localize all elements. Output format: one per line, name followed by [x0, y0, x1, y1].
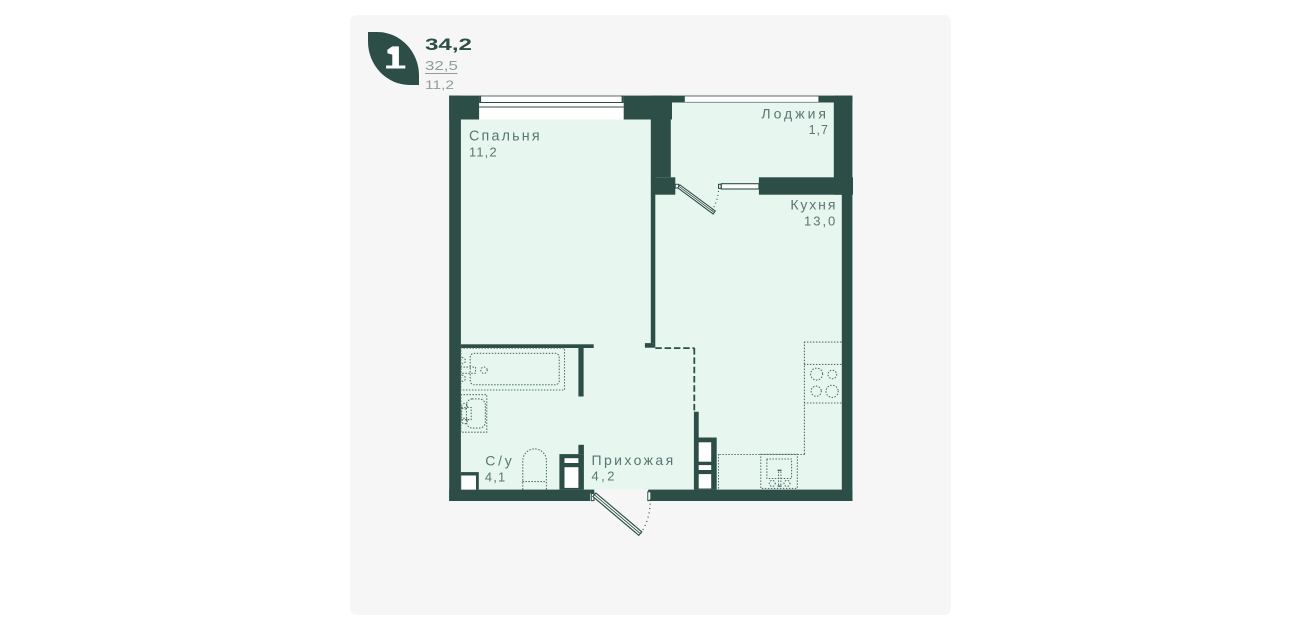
svg-text:13,0: 13,0 — [804, 214, 837, 229]
svg-text:11,2: 11,2 — [469, 144, 498, 159]
svg-text:С/у: С/у — [485, 453, 514, 469]
svg-text:4,2: 4,2 — [592, 469, 617, 484]
svg-text:4,1: 4,1 — [485, 469, 507, 484]
svg-text:Спальня: Спальня — [469, 129, 542, 145]
svg-text:Прихожая: Прихожая — [592, 452, 676, 468]
svg-text:Кухня: Кухня — [790, 197, 837, 213]
svg-text:1,7: 1,7 — [809, 123, 829, 137]
svg-text:Лоджия: Лоджия — [761, 106, 829, 122]
